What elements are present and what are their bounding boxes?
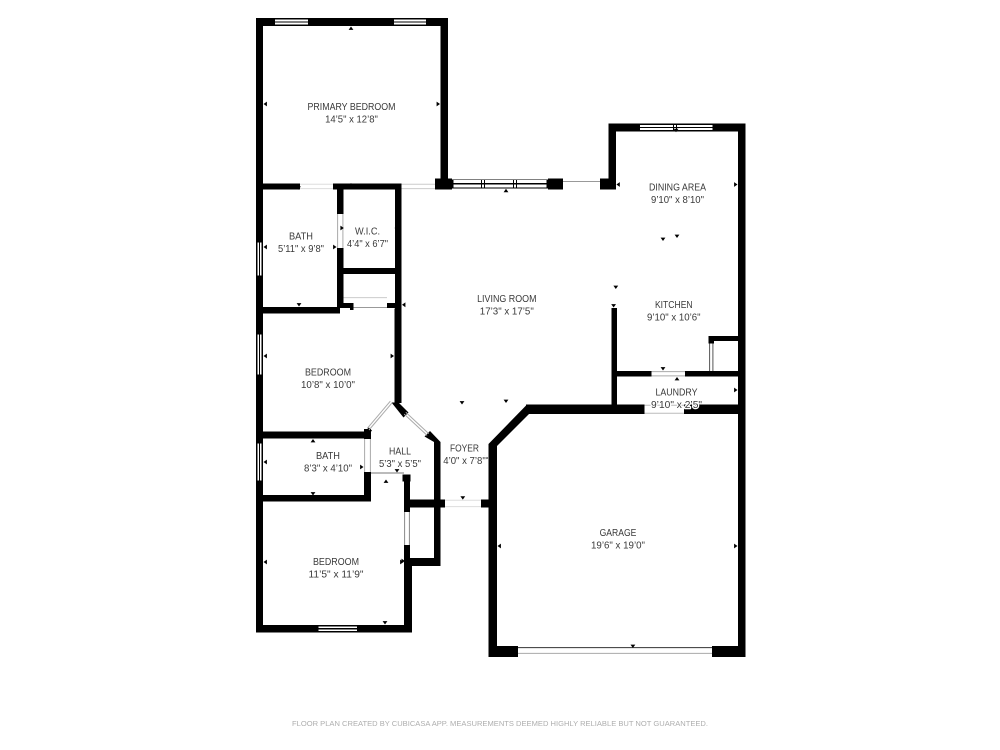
svg-text:W.I.C.: W.I.C. [355,227,380,238]
svg-text:11’5" x 11’9": 11’5" x 11’9" [309,570,364,581]
svg-text:GARAGE: GARAGE [600,528,637,539]
svg-text:4’0" x 7’8": 4’0" x 7’8" [443,456,486,467]
svg-text:19’6" x 19’0": 19’6" x 19’0" [591,540,645,551]
svg-text:PRIMARY BEDROOM: PRIMARY BEDROOM [308,102,396,113]
svg-text:DINING AREA: DINING AREA [649,183,706,194]
svg-text:9’10" x 8’10": 9’10" x 8’10" [651,195,704,206]
svg-text:LAUNDRY: LAUNDRY [656,387,698,398]
svg-text:BATH: BATH [289,232,313,243]
svg-text:14’5" x 12’8": 14’5" x 12’8" [325,114,378,125]
svg-text:17’3" x 17’5": 17’3" x 17’5" [480,307,534,318]
svg-text:LIVING ROOM: LIVING ROOM [477,294,536,305]
svg-text:BATH: BATH [316,451,340,462]
svg-text:FOYER: FOYER [450,444,479,455]
svg-text:9’10" x 2’5": 9’10" x 2’5" [651,400,702,411]
svg-text:9’10" x 10’6": 9’10" x 10’6" [647,313,701,324]
svg-text:5’11" x 9’8": 5’11" x 9’8" [278,244,324,255]
svg-text:BEDROOM: BEDROOM [313,557,359,568]
svg-text:HALL: HALL [389,447,411,458]
svg-text:FLOOR PLAN CREATED BY CUBICASA: FLOOR PLAN CREATED BY CUBICASA APP. MEAS… [292,719,708,728]
svg-text:KITCHEN: KITCHEN [655,300,693,311]
svg-text:10’8" x 10’0": 10’8" x 10’0" [301,380,355,391]
svg-text:5’3" x 5’5": 5’3" x 5’5" [379,459,421,470]
svg-text:BEDROOM: BEDROOM [305,368,351,379]
svg-text:8’3" x 4’10": 8’3" x 4’10" [304,464,352,475]
svg-text:4’4" x 6’7": 4’4" x 6’7" [347,239,388,250]
